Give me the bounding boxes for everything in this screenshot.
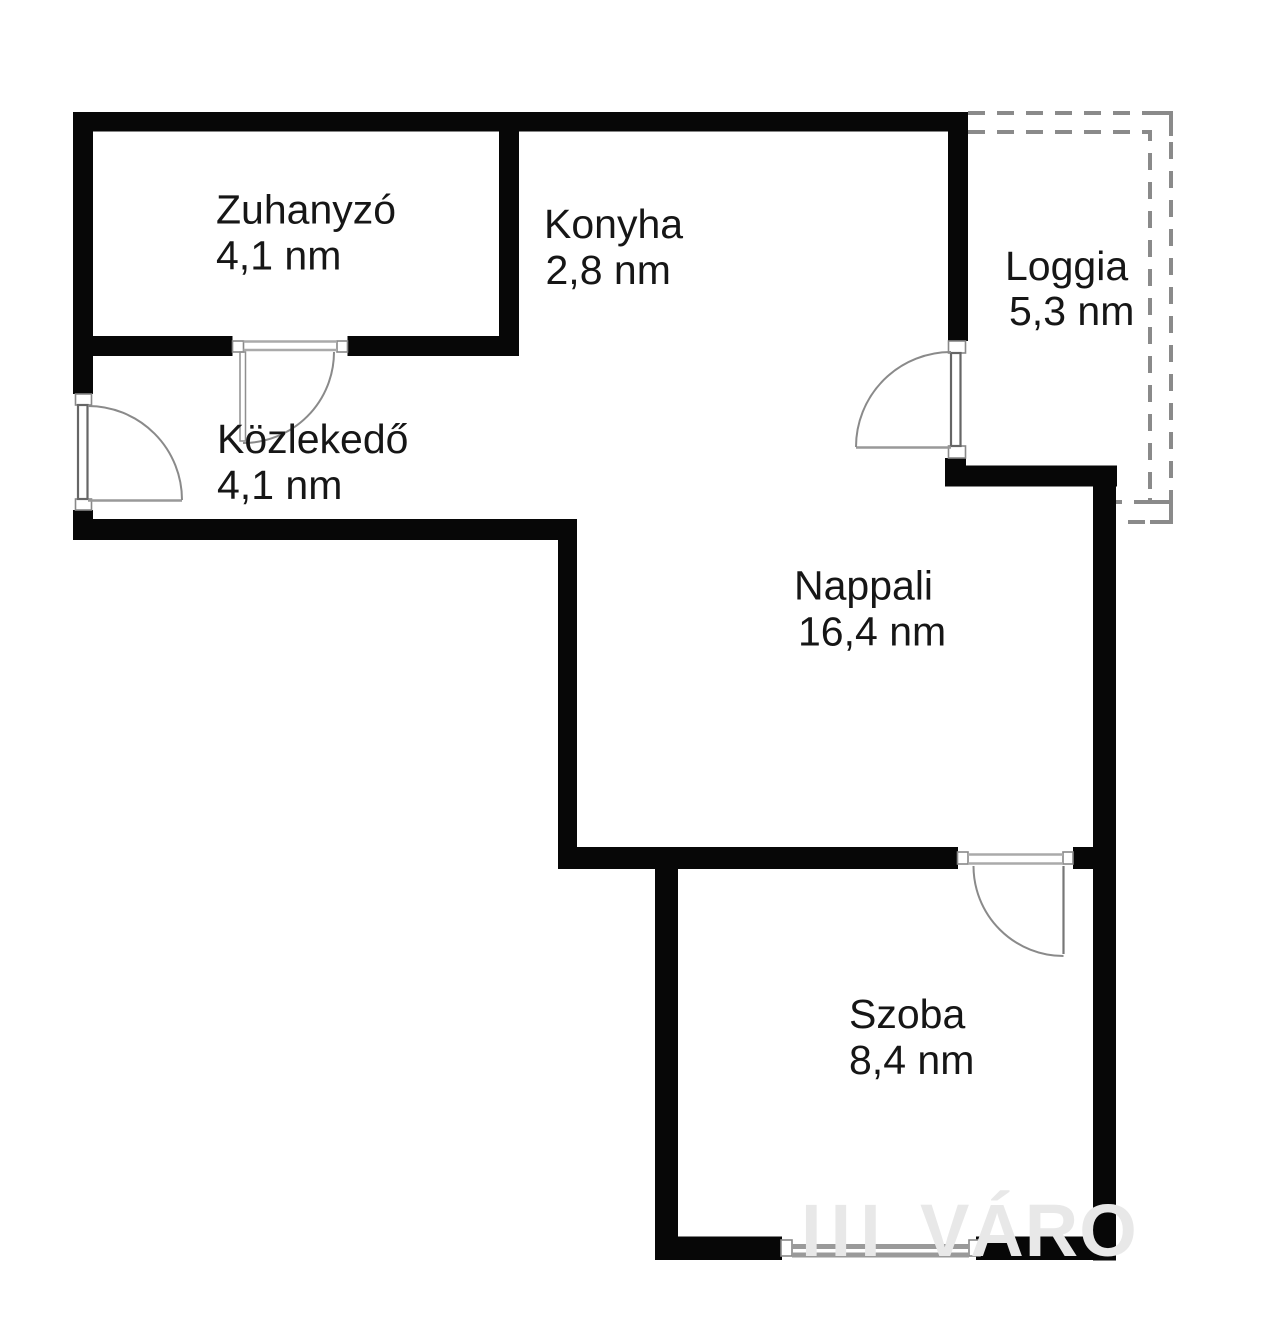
svg-text:Konyha: Konyha bbox=[544, 201, 683, 247]
svg-text:16,4 nm: 16,4 nm bbox=[798, 609, 946, 655]
svg-text:Loggia: Loggia bbox=[1005, 243, 1128, 289]
svg-text:Közlekedő: Közlekedő bbox=[217, 416, 408, 462]
svg-text:5,3 nm: 5,3 nm bbox=[1009, 288, 1134, 334]
svg-text:Nappali: Nappali bbox=[794, 563, 933, 609]
svg-text:2,8 nm: 2,8 nm bbox=[546, 247, 671, 293]
svg-text:VÁRO: VÁRO bbox=[920, 1189, 1138, 1272]
svg-text:4,1 nm: 4,1 nm bbox=[216, 233, 341, 279]
svg-text:Zuhanyzó: Zuhanyzó bbox=[216, 187, 396, 233]
svg-text:4,1 nm: 4,1 nm bbox=[217, 462, 342, 508]
svg-text:Szoba: Szoba bbox=[849, 991, 965, 1037]
svg-text:8,4 nm: 8,4 nm bbox=[849, 1037, 974, 1083]
svg-text:III: III bbox=[801, 1189, 890, 1272]
